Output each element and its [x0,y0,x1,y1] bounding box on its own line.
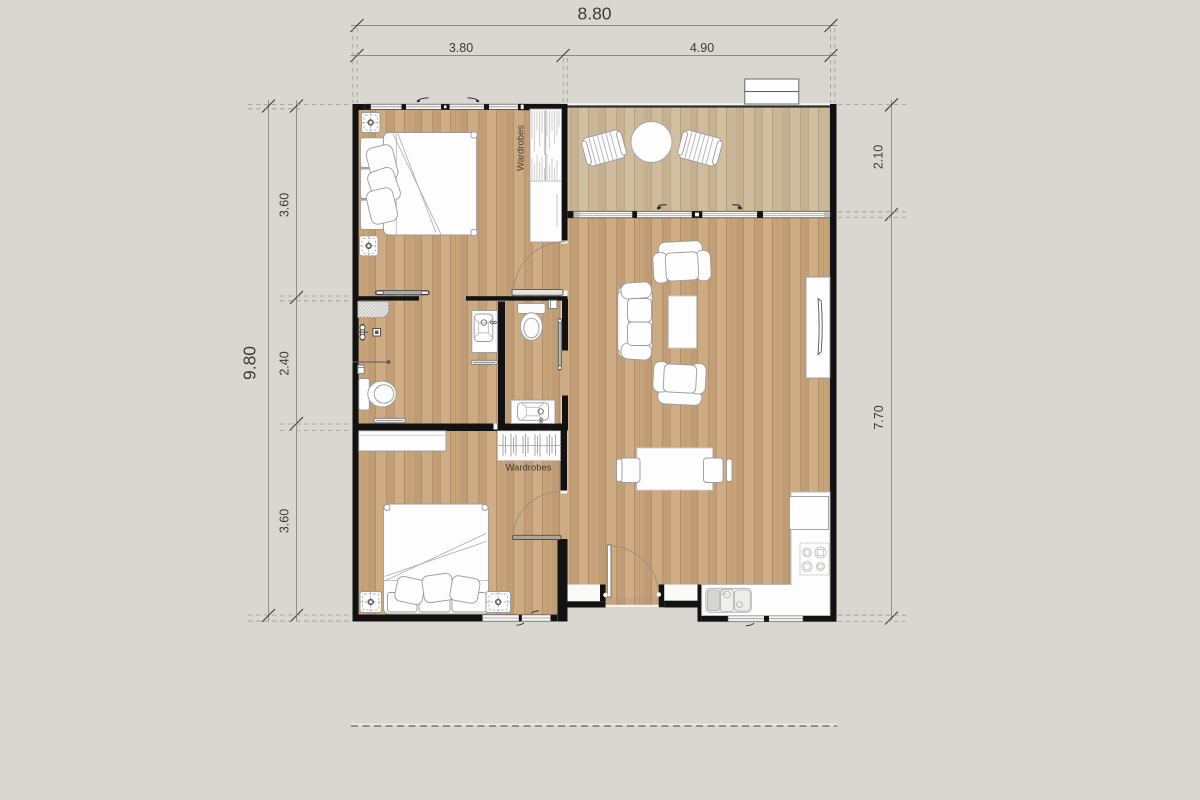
svg-text:7.70: 7.70 [872,405,886,429]
svg-text:4.90: 4.90 [690,41,714,55]
svg-text:3.60: 3.60 [278,509,292,533]
svg-text:8.80: 8.80 [577,4,611,24]
svg-text:Wardrobes: Wardrobes [505,463,551,474]
svg-text:2.10: 2.10 [872,145,886,169]
svg-text:3.60: 3.60 [278,193,292,217]
svg-text:2.40: 2.40 [278,351,292,375]
svg-text:9.80: 9.80 [240,346,260,380]
svg-text:Wardrobes: Wardrobes [516,125,527,171]
svg-text:3.80: 3.80 [449,41,473,55]
